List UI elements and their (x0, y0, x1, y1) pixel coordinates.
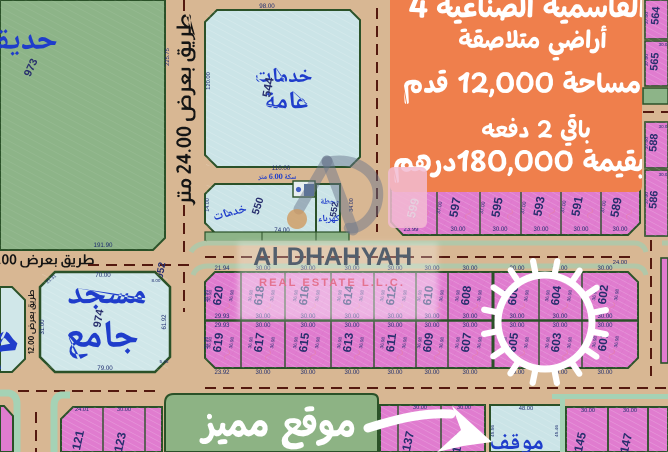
svg-text:29.93: 29.93 (214, 314, 230, 320)
svg-text:30.00: 30.00 (457, 405, 471, 411)
svg-text:617: 617 (251, 331, 267, 353)
svg-text:30.0: 30.0 (659, 172, 668, 177)
svg-text:565: 565 (648, 52, 662, 71)
svg-text:620: 620 (210, 284, 226, 306)
svg-text:79.00: 79.00 (97, 365, 113, 372)
svg-text:611: 611 (383, 332, 399, 353)
svg-text:21.94: 21.94 (214, 266, 230, 272)
svg-text:120.00: 120.00 (206, 72, 212, 90)
svg-text:98.00: 98.00 (259, 3, 275, 10)
svg-text:30.00: 30.00 (533, 227, 549, 233)
svg-text:30.00: 30.00 (344, 323, 360, 329)
svg-text:30.00: 30.00 (424, 370, 440, 376)
svg-text:30.00: 30.00 (344, 370, 360, 376)
svg-text:48.00: 48.00 (519, 406, 534, 412)
svg-text:30.0: 30.0 (659, 42, 668, 47)
svg-text:30.00: 30.00 (581, 408, 595, 414)
svg-text:615: 615 (296, 331, 312, 353)
svg-text:30.00: 30.00 (612, 227, 628, 233)
svg-text:619: 619 (210, 331, 226, 353)
svg-text:110.00: 110.00 (272, 165, 291, 172)
svg-text:604: 604 (548, 284, 564, 306)
svg-text:24.01: 24.01 (75, 407, 89, 413)
svg-text:30.00: 30.00 (552, 323, 568, 329)
svg-text:30.00: 30.00 (573, 227, 589, 233)
svg-text:30.00: 30.00 (492, 227, 508, 233)
svg-text:45.46: 45.46 (554, 425, 560, 437)
svg-text:30.00: 30.00 (300, 370, 316, 376)
svg-text:30.00: 30.00 (509, 323, 525, 329)
svg-text:30.00: 30.00 (255, 370, 271, 376)
svg-text:30.98: 30.98 (204, 337, 210, 350)
svg-text:29.93: 29.93 (214, 323, 230, 329)
svg-text:37.00: 37.00 (644, 12, 650, 24)
svg-text:30.00: 30.00 (509, 314, 525, 320)
svg-text:607: 607 (458, 331, 474, 353)
svg-text:608: 608 (458, 284, 474, 306)
svg-text:37.00: 37.00 (644, 54, 650, 66)
svg-text:30.00: 30.00 (462, 314, 478, 320)
svg-text:5.46: 5.46 (160, 359, 169, 364)
svg-text:30.00: 30.00 (387, 370, 403, 376)
svg-text:45.56: 45.56 (490, 425, 496, 437)
svg-text:30.0: 30.0 (659, 124, 668, 129)
svg-text:30.00: 30.00 (552, 314, 568, 320)
svg-text:REAL ESTATE L.L.C.: REAL ESTATE L.L.C. (259, 277, 405, 289)
svg-text:30.00: 30.00 (255, 323, 271, 329)
svg-text:23.92: 23.92 (214, 370, 230, 376)
svg-text:603: 603 (548, 331, 564, 353)
svg-text:8.00: 8.00 (152, 278, 161, 283)
svg-text:30.00: 30.00 (597, 370, 613, 376)
svg-text:191.90: 191.90 (94, 242, 113, 249)
svg-text:61.92: 61.92 (162, 314, 168, 330)
svg-text:30.00: 30.00 (597, 323, 613, 329)
svg-text:225.75: 225.75 (165, 48, 171, 66)
svg-text:30.00: 30.00 (300, 323, 316, 329)
svg-text:30.00: 30.00 (462, 323, 478, 329)
svg-text:30.00: 30.00 (623, 408, 637, 414)
svg-text:30.00: 30.00 (462, 266, 478, 272)
svg-text:Al DHAHYAH: Al DHAHYAH (253, 243, 413, 271)
svg-text:564: 564 (649, 5, 663, 25)
svg-text:609: 609 (420, 331, 436, 353)
svg-text:30.00: 30.00 (413, 405, 427, 411)
svg-text:14.00: 14.00 (205, 198, 211, 212)
svg-text:37.00: 37.00 (644, 137, 650, 149)
svg-text:30.98: 30.98 (204, 290, 210, 303)
svg-text:613: 613 (340, 331, 356, 353)
svg-text:24.00: 24.00 (613, 260, 628, 266)
svg-text:30.00: 30.00 (424, 323, 440, 329)
svg-text:70.00: 70.00 (95, 272, 111, 279)
svg-text:30.00: 30.00 (597, 314, 613, 320)
svg-text:30.00: 30.00 (597, 266, 613, 272)
svg-text:30.00: 30.00 (450, 227, 466, 233)
svg-text:31.00: 31.00 (40, 319, 46, 335)
svg-text:30.00: 30.00 (117, 407, 131, 413)
svg-text:37.00: 37.00 (644, 192, 650, 204)
svg-text:30.00: 30.00 (387, 323, 403, 329)
svg-text:30.00: 30.00 (462, 370, 478, 376)
